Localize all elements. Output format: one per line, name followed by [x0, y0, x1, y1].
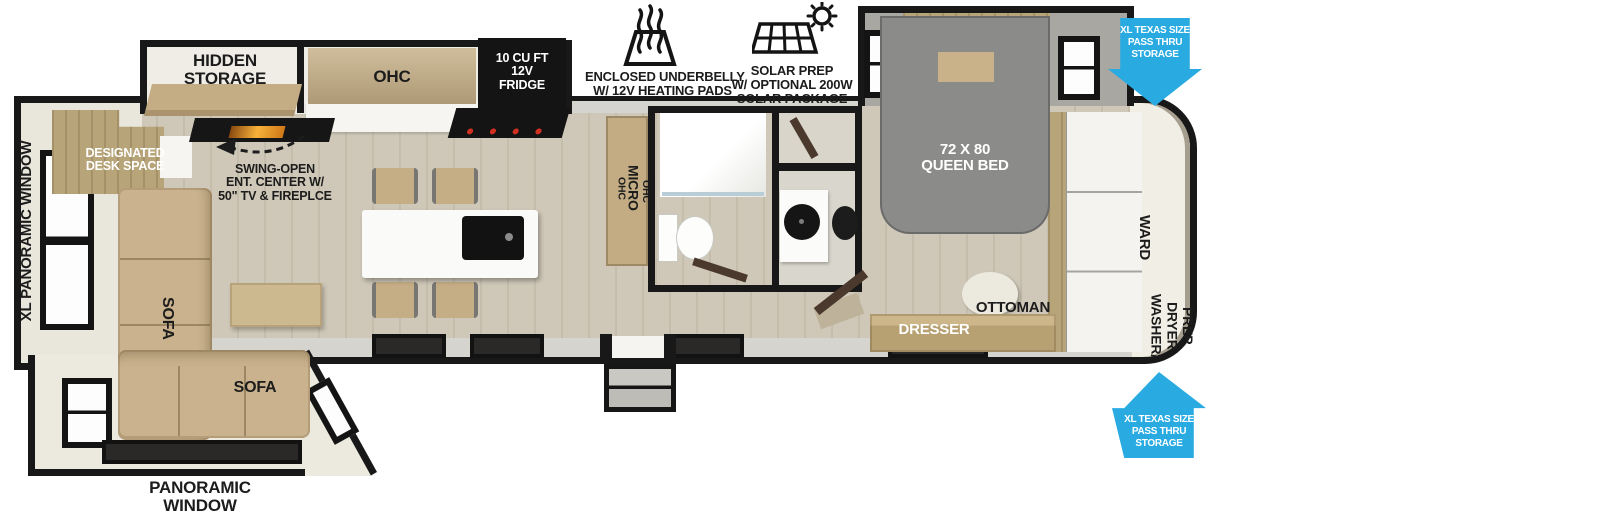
entry-door-opening — [612, 336, 664, 358]
laundry-basin — [832, 206, 858, 240]
hidden-storage-divider-wall — [297, 47, 304, 113]
sofa-slideout-left-window — [62, 378, 112, 448]
hidden-storage-label: HIDDEN STORAGE — [153, 52, 297, 88]
sofa-seam-4 — [244, 366, 246, 436]
island-chair-4 — [432, 282, 478, 318]
ottoman-label: OTTOMAN — [958, 300, 1068, 316]
pass-thru-front-label: XL TEXAS SIZE PASS THRU STORAGE — [1108, 25, 1202, 60]
toilet-tank — [658, 214, 678, 262]
bed-pillow-shelf — [938, 52, 994, 82]
pass-thru-rear-arrow: XL TEXAS SIZE PASS THRU STORAGE — [1112, 372, 1206, 458]
wardrobe-cabinet — [1066, 112, 1142, 352]
living-bottom-window-1 — [372, 334, 446, 358]
queen-bed-label: 72 X 80 QUEEN BED — [885, 142, 1045, 174]
sofa-main-label: SOFA — [200, 380, 310, 397]
sofa-seam-3 — [178, 366, 180, 436]
dashed-arrow-icon — [212, 130, 312, 162]
living-bottom-window-2 — [470, 334, 544, 358]
dresser-label: DRESSER — [884, 322, 984, 338]
swing-arrow — [212, 130, 312, 162]
island-chair-2 — [432, 168, 478, 204]
solar-panel-icon — [752, 2, 844, 64]
heating-pads-icon — [610, 2, 690, 68]
ent-center-label: SWING-OPEN ENT. CENTER W/ 50" TV & FIREP… — [195, 163, 355, 203]
solar-label: SOLAR PREP W/ OPTIONAL 200W SOLAR PACKAG… — [712, 64, 872, 105]
shower — [660, 113, 766, 197]
entry-steps — [604, 364, 676, 412]
living-bottom-window-3 — [668, 334, 744, 358]
xl-panoramic-window-label: XL PANORAMIC WINDOW — [19, 100, 43, 362]
panoramic-window-label: PANORAMIC WINDOW — [120, 479, 280, 515]
kitchen-ohc-label: OHC — [308, 68, 476, 86]
bathroom-closet — [772, 106, 862, 170]
sofa-chaise-label: SOFA — [158, 272, 175, 364]
island-sink-faucet — [505, 233, 513, 241]
island-chair-3 — [372, 282, 418, 318]
sofa-seam-1 — [120, 258, 210, 260]
desk-label: DESIGNATED DESK SPACE — [60, 147, 190, 174]
wardrobe-label: WARD — [1136, 208, 1152, 268]
fridge-label: 10 CU FT 12V FRIDGE — [478, 52, 566, 92]
island-chair-1 — [372, 168, 418, 204]
shower-door — [662, 192, 764, 196]
island-sink — [462, 216, 524, 260]
queen-bed — [880, 16, 1050, 234]
bathroom-sink-drain — [799, 219, 804, 224]
entry-door-post-left — [600, 334, 612, 360]
toilet-bowl — [676, 216, 714, 260]
hidden-storage-cabinet — [144, 84, 302, 116]
coffee-table — [230, 283, 322, 327]
rv-floorplan: XL PANORAMIC WINDOW PANORAMIC WINDOW HID… — [0, 0, 1600, 517]
pass-thru-rear-label: XL TEXAS SIZE PASS THRU STORAGE — [1112, 414, 1206, 449]
micro-cabinet-labels: OHC MICRO OHC — [616, 122, 651, 260]
washer-dryer-prep-label: WASHER/ DRYER PREP — [1148, 268, 1195, 384]
panoramic-window-glass — [102, 440, 302, 464]
entry-door-post-right — [664, 334, 676, 360]
bed-slideout-right-window — [1058, 36, 1100, 100]
